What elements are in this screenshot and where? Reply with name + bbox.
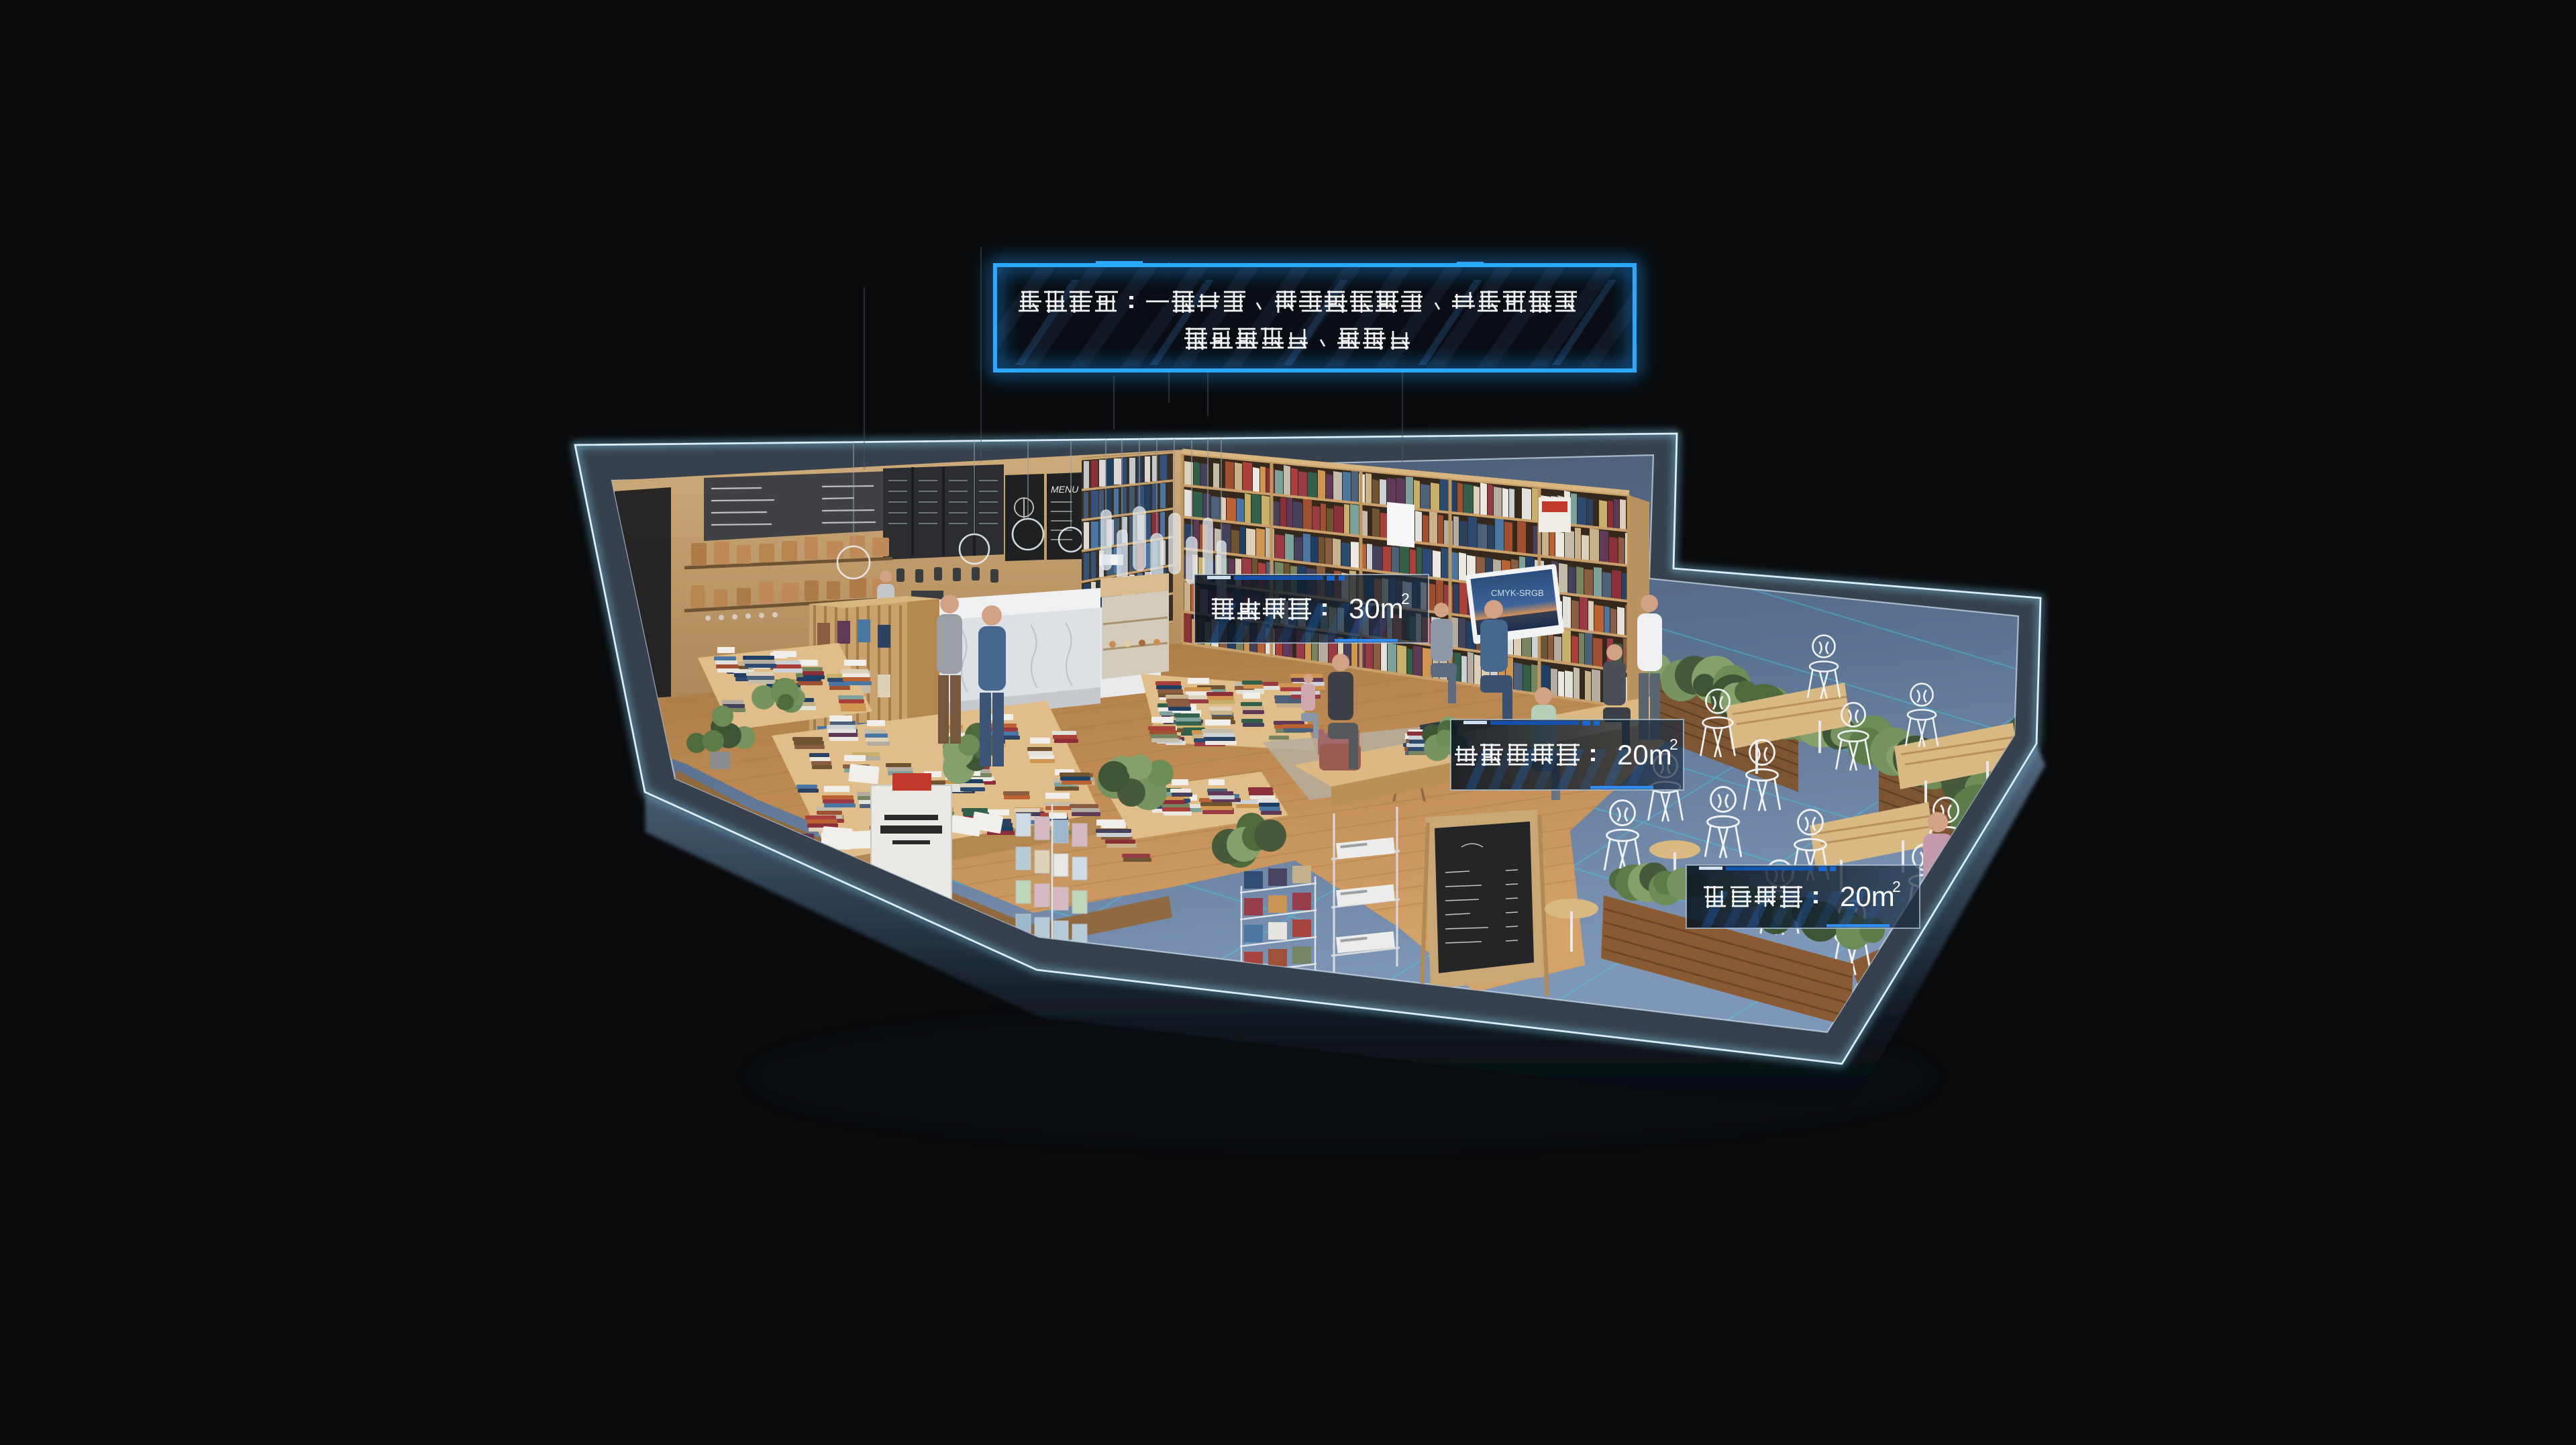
svg-text:2: 2 <box>1401 590 1410 607</box>
svg-text:2: 2 <box>1669 736 1678 753</box>
svg-text:2: 2 <box>1892 878 1901 895</box>
svg-text:30m: 30m <box>1349 593 1404 624</box>
svg-text:CMYK-SRGB: CMYK-SRGB <box>1491 588 1544 598</box>
svg-text:MENU: MENU <box>1051 484 1079 495</box>
svg-text:20m: 20m <box>1617 739 1672 770</box>
svg-text:20m: 20m <box>1840 881 1895 912</box>
